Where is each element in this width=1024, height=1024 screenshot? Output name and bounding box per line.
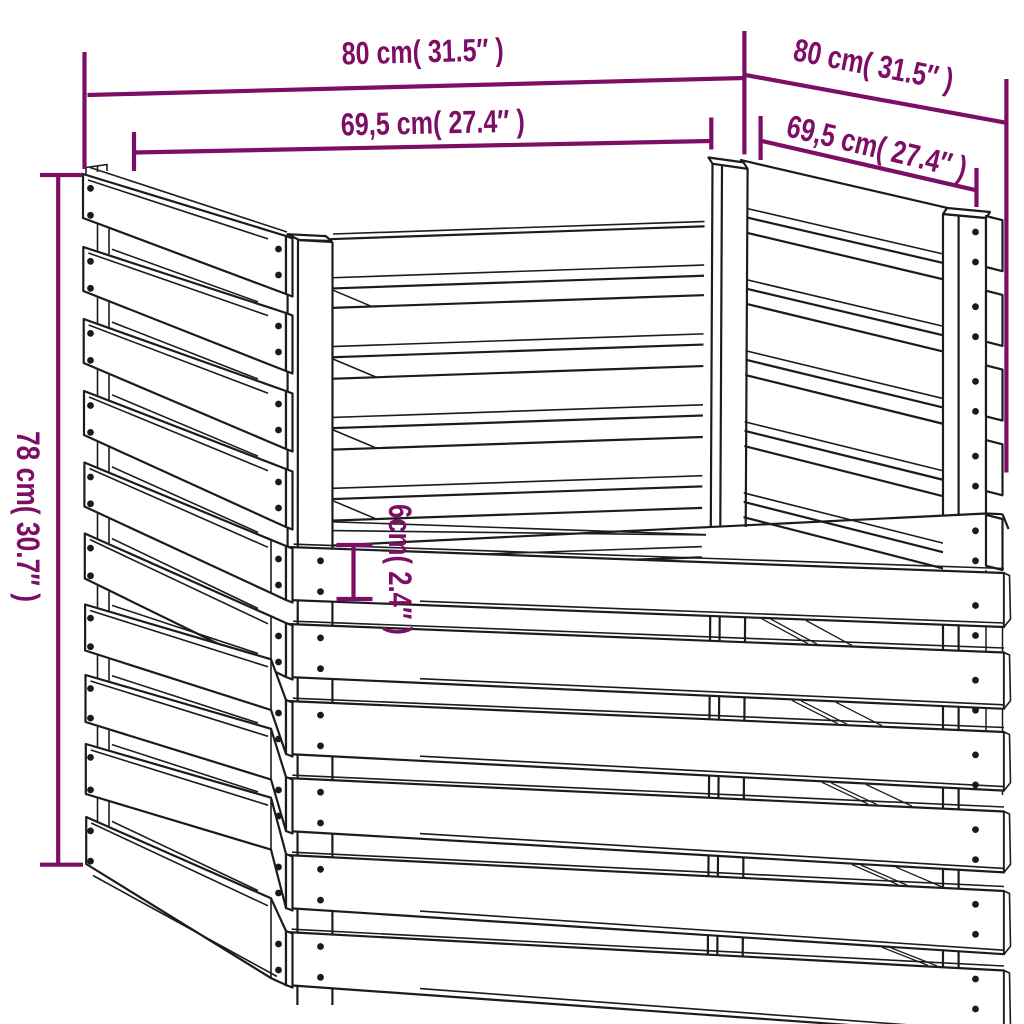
svg-text:6cm( 2.4″ ): 6cm( 2.4″ )	[382, 504, 418, 635]
svg-text:78 cm( 30.7″ ): 78 cm( 30.7″ )	[10, 431, 46, 602]
svg-text:80 cm( 31.5″ ): 80 cm( 31.5″ )	[341, 31, 504, 71]
svg-text:69,5 cm( 27.4″ ): 69,5 cm( 27.4″ )	[340, 103, 525, 143]
